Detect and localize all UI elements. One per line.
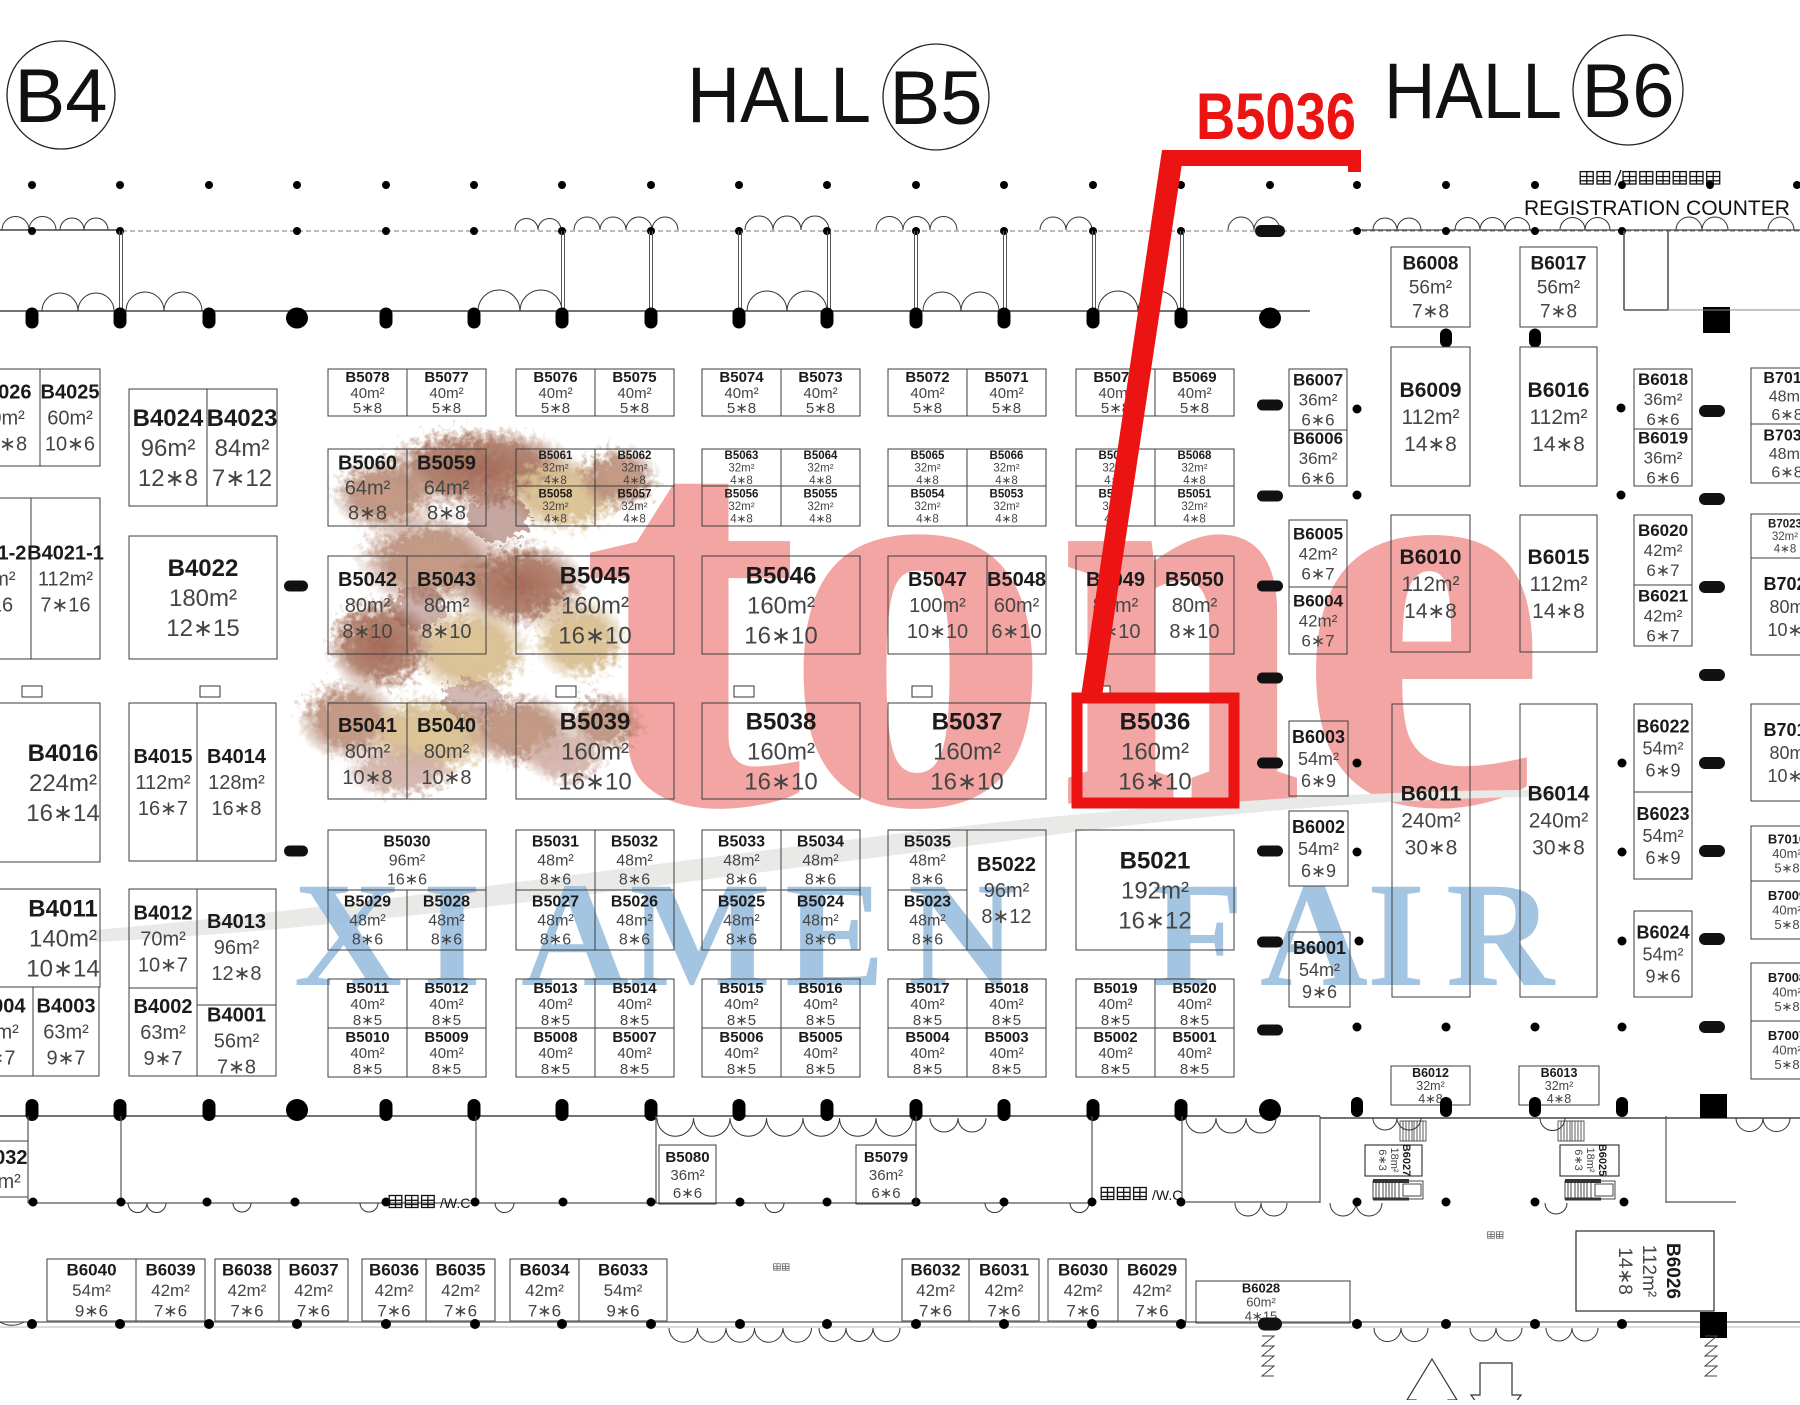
svg-text:B6032: B6032 xyxy=(910,1261,960,1280)
svg-text:6∗9: 6∗9 xyxy=(1301,861,1336,881)
svg-text:6∗6: 6∗6 xyxy=(871,1185,900,1202)
svg-text:112m²: 112m² xyxy=(1402,573,1460,596)
svg-text:80m²: 80m² xyxy=(1769,597,1800,617)
svg-text:192m²: 192m² xyxy=(1121,877,1189,904)
svg-text:32m²: 32m² xyxy=(1545,1079,1573,1093)
svg-text:B6034: B6034 xyxy=(519,1261,570,1280)
svg-text:B5009: B5009 xyxy=(424,1029,468,1046)
svg-text:42m²: 42m² xyxy=(1133,1281,1172,1300)
svg-text:B7019: B7019 xyxy=(1763,720,1800,740)
svg-text:54m²: 54m² xyxy=(1299,960,1340,980)
svg-text:64m²: 64m² xyxy=(424,478,470,500)
svg-text:42m²: 42m² xyxy=(1064,1281,1103,1300)
svg-text:B6: B6 xyxy=(1582,49,1675,134)
svg-text:B6035: B6035 xyxy=(435,1261,485,1280)
svg-text:B5035: B5035 xyxy=(904,834,951,851)
svg-text:40m²: 40m² xyxy=(350,1045,384,1062)
svg-text:B4015: B4015 xyxy=(134,746,193,768)
svg-text:10∗8: 10∗8 xyxy=(342,767,392,789)
svg-text:7∗6: 7∗6 xyxy=(1135,1302,1168,1321)
svg-text:40m²: 40m² xyxy=(724,996,758,1013)
svg-text:32m²: 32m² xyxy=(542,501,568,513)
svg-text:7∗8: 7∗8 xyxy=(1412,302,1449,323)
svg-text:B5036: B5036 xyxy=(1120,708,1191,735)
svg-text:B5041: B5041 xyxy=(338,715,397,737)
svg-text:B6037: B6037 xyxy=(288,1261,338,1280)
svg-text:40m²: 40m² xyxy=(1772,903,1800,918)
svg-text:16∗12: 16∗12 xyxy=(1118,907,1192,934)
svg-text:6∗7: 6∗7 xyxy=(1301,632,1334,651)
svg-text:16∗14: 16∗14 xyxy=(26,800,100,827)
svg-text:B5031: B5031 xyxy=(532,834,579,851)
svg-text:B5023: B5023 xyxy=(904,894,951,911)
svg-text:B7010: B7010 xyxy=(1768,832,1800,847)
svg-text:B6026: B6026 xyxy=(1662,1243,1683,1299)
svg-text:B4002: B4002 xyxy=(134,996,193,1018)
svg-text:70m²: 70m² xyxy=(140,929,186,951)
svg-text:54m²: 54m² xyxy=(72,1281,111,1300)
svg-text:6∗6: 6∗6 xyxy=(673,1185,702,1202)
svg-text:40m²: 40m² xyxy=(910,1045,944,1062)
svg-text:B4014: B4014 xyxy=(207,746,267,768)
svg-text:112m²: 112m² xyxy=(1638,1245,1659,1297)
svg-text:8∗5: 8∗5 xyxy=(1101,1012,1130,1029)
svg-text:B5025: B5025 xyxy=(718,894,765,911)
svg-text:B6009: B6009 xyxy=(1400,379,1462,402)
svg-text:B5027: B5027 xyxy=(532,894,579,911)
svg-text:I: I xyxy=(1367,852,1425,1018)
svg-text:140m²: 140m² xyxy=(29,925,97,952)
svg-text:B5014: B5014 xyxy=(612,980,657,997)
svg-text:8∗6: 8∗6 xyxy=(912,932,943,949)
svg-text:5∗8: 5∗8 xyxy=(1774,1057,1799,1072)
svg-text:5∗8: 5∗8 xyxy=(992,400,1021,417)
svg-text:B5072: B5072 xyxy=(905,369,949,386)
svg-text:4∗8: 4∗8 xyxy=(544,475,566,487)
svg-text:8∗8: 8∗8 xyxy=(348,503,387,525)
svg-text:B6022: B6022 xyxy=(1636,716,1689,736)
svg-text:48m²: 48m² xyxy=(616,853,653,870)
svg-text:16∗6: 16∗6 xyxy=(387,872,427,889)
svg-text:B5040: B5040 xyxy=(417,715,476,737)
svg-text:8∗5: 8∗5 xyxy=(541,1061,570,1078)
svg-text:40m²: 40m² xyxy=(429,996,463,1013)
svg-text:8∗6: 8∗6 xyxy=(805,932,836,949)
svg-text:B5055: B5055 xyxy=(804,488,838,500)
svg-text:4∗8: 4∗8 xyxy=(1183,514,1205,526)
svg-text:112m²: 112m² xyxy=(0,569,16,591)
svg-text:B5011: B5011 xyxy=(346,980,389,997)
svg-text:B5065: B5065 xyxy=(911,450,945,462)
svg-text:B5017: B5017 xyxy=(905,980,949,997)
svg-text:32m²: 32m² xyxy=(807,463,833,475)
svg-text:B5068: B5068 xyxy=(1178,450,1212,462)
svg-text:180m²: 180m² xyxy=(169,585,237,612)
svg-text:36m²: 36m² xyxy=(1299,449,1338,468)
svg-text:4∗8: 4∗8 xyxy=(809,475,831,487)
svg-text:32m²: 32m² xyxy=(1181,463,1207,475)
svg-text:40m²: 40m² xyxy=(429,1045,463,1062)
svg-text:4∗8: 4∗8 xyxy=(544,514,566,526)
svg-text:7∗8: 7∗8 xyxy=(1540,302,1577,323)
svg-text:84m²: 84m² xyxy=(215,435,270,462)
svg-text:6∗8: 6∗8 xyxy=(1771,407,1800,424)
svg-text:48m²: 48m² xyxy=(802,853,839,870)
svg-text:8∗10: 8∗10 xyxy=(342,621,392,643)
svg-text:4∗8: 4∗8 xyxy=(809,514,831,526)
svg-text:8∗5: 8∗5 xyxy=(353,1061,382,1078)
svg-text:B6030: B6030 xyxy=(1058,1261,1108,1280)
svg-text:7∗6: 7∗6 xyxy=(297,1302,330,1321)
svg-text:7∗16: 7∗16 xyxy=(0,595,13,617)
svg-text:8∗10: 8∗10 xyxy=(421,621,471,643)
svg-text:8∗5: 8∗5 xyxy=(432,1061,461,1078)
svg-text:16∗10: 16∗10 xyxy=(930,768,1004,795)
svg-text:100m²: 100m² xyxy=(909,595,966,617)
svg-text:80m²: 80m² xyxy=(1172,595,1218,617)
svg-text:6∗9: 6∗9 xyxy=(1645,760,1680,780)
svg-text:63m²: 63m² xyxy=(43,1022,89,1044)
svg-text:B5003: B5003 xyxy=(984,1029,1028,1046)
svg-text:B6033: B6033 xyxy=(598,1261,648,1280)
svg-text:18m²: 18m² xyxy=(1388,1147,1400,1172)
svg-text:B6016: B6016 xyxy=(1528,379,1590,402)
svg-text:B5018: B5018 xyxy=(984,980,1028,997)
svg-text:B6011: B6011 xyxy=(1401,782,1462,805)
svg-text:16∗7: 16∗7 xyxy=(138,798,188,820)
svg-text:40m²: 40m² xyxy=(724,1045,758,1062)
svg-text:B6018: B6018 xyxy=(1638,370,1688,389)
svg-text:B6029: B6029 xyxy=(1127,1261,1177,1280)
svg-text:4∗8: 4∗8 xyxy=(730,475,752,487)
svg-text:B4024: B4024 xyxy=(133,405,204,432)
svg-text:B6021: B6021 xyxy=(1638,587,1688,606)
svg-text:42m²: 42m² xyxy=(916,1281,955,1300)
svg-text:30∗8: 30∗8 xyxy=(1532,836,1585,859)
svg-text:B5030: B5030 xyxy=(383,834,430,851)
svg-text:8∗12: 8∗12 xyxy=(981,906,1031,928)
svg-text:9∗6: 9∗6 xyxy=(606,1302,639,1321)
svg-text:7∗6: 7∗6 xyxy=(987,1302,1020,1321)
svg-text:B5061: B5061 xyxy=(539,450,573,462)
svg-text:8∗10: 8∗10 xyxy=(1169,621,1219,643)
svg-text:B5002: B5002 xyxy=(1093,1029,1137,1046)
svg-text:10∗8: 10∗8 xyxy=(0,434,27,456)
svg-text:B5048: B5048 xyxy=(987,569,1046,591)
svg-text:80m²: 80m² xyxy=(345,741,391,763)
svg-text:14∗8: 14∗8 xyxy=(1614,1247,1635,1295)
svg-text:6∗6: 6∗6 xyxy=(1301,469,1334,488)
svg-text:7∗6: 7∗6 xyxy=(444,1302,477,1321)
svg-text:32m²: 32m² xyxy=(621,463,647,475)
svg-text:8∗6: 8∗6 xyxy=(352,932,383,949)
svg-text:B5054: B5054 xyxy=(911,488,945,500)
svg-text:56m²: 56m² xyxy=(1409,278,1452,299)
svg-text:B6040: B6040 xyxy=(66,1261,116,1280)
svg-text:B6001: B6001 xyxy=(1293,938,1346,958)
svg-text:8∗5: 8∗5 xyxy=(432,1012,461,1029)
svg-text:8∗6: 8∗6 xyxy=(540,872,571,889)
svg-text:B5066: B5066 xyxy=(990,450,1024,462)
svg-text:40m²: 40m² xyxy=(1772,1043,1800,1058)
svg-text:160m²: 160m² xyxy=(561,592,629,619)
svg-text:B7033: B7033 xyxy=(1763,428,1800,445)
svg-text:40m²: 40m² xyxy=(350,996,384,1013)
svg-text:16∗8: 16∗8 xyxy=(211,798,261,820)
svg-text:48m²: 48m² xyxy=(349,913,386,930)
svg-text:240m²: 240m² xyxy=(1401,809,1461,832)
svg-text:B5079: B5079 xyxy=(864,1149,908,1166)
svg-text:B4013: B4013 xyxy=(207,911,266,933)
svg-text:9∗7: 9∗7 xyxy=(143,1048,182,1070)
svg-text:B5036: B5036 xyxy=(1196,79,1356,153)
svg-text:B5060: B5060 xyxy=(338,453,397,475)
svg-text:8∗5: 8∗5 xyxy=(992,1061,1021,1078)
svg-text:HALL: HALL xyxy=(1384,46,1562,135)
svg-text:7∗12: 7∗12 xyxy=(212,465,272,492)
svg-text:4∗8: 4∗8 xyxy=(1547,1092,1571,1106)
svg-text:112m²: 112m² xyxy=(1530,406,1588,429)
svg-text:8∗8: 8∗8 xyxy=(427,503,466,525)
svg-text:B4026: B4026 xyxy=(0,382,31,404)
svg-text:B6002: B6002 xyxy=(1292,817,1345,837)
svg-text:B4004: B4004 xyxy=(0,996,26,1018)
svg-text:8∗6: 8∗6 xyxy=(540,932,571,949)
svg-text:32m²: 32m² xyxy=(621,501,647,513)
svg-text:8∗5: 8∗5 xyxy=(1180,1061,1209,1078)
svg-text:9∗7: 9∗7 xyxy=(0,1048,16,1070)
svg-text:112m²: 112m² xyxy=(135,772,191,794)
svg-text:6∗6: 6∗6 xyxy=(1301,410,1334,429)
svg-text:40m²: 40m² xyxy=(1098,996,1132,1013)
svg-text:32m²: 32m² xyxy=(542,463,568,475)
svg-text:8∗5: 8∗5 xyxy=(806,1061,835,1078)
svg-text:B4: B4 xyxy=(15,54,108,139)
svg-text:8∗5: 8∗5 xyxy=(620,1061,649,1078)
svg-text:B7008: B7008 xyxy=(1768,970,1800,985)
svg-text:6∗6: 6∗6 xyxy=(1646,468,1679,487)
svg-text:B7009: B7009 xyxy=(1768,888,1800,903)
svg-text:B6024: B6024 xyxy=(1636,922,1689,942)
svg-text:B5047: B5047 xyxy=(908,569,967,591)
svg-text:56m²: 56m² xyxy=(214,1031,260,1053)
svg-text:48m²: 48m² xyxy=(616,913,653,930)
svg-text:32m²: 32m² xyxy=(914,501,940,513)
svg-text:B7007: B7007 xyxy=(1768,1028,1800,1043)
svg-text:48m²: 48m² xyxy=(723,853,760,870)
svg-text:4∗8: 4∗8 xyxy=(916,514,938,526)
svg-text:10∗8: 10∗8 xyxy=(1767,620,1800,640)
svg-text:14∗8: 14∗8 xyxy=(1404,600,1457,623)
svg-text:10∗8: 10∗8 xyxy=(1767,766,1800,786)
svg-text:14∗8: 14∗8 xyxy=(1532,433,1585,456)
svg-text:54m²: 54m² xyxy=(0,1171,21,1193)
svg-text:B7024: B7024 xyxy=(1763,574,1800,594)
svg-text:240m²: 240m² xyxy=(1529,809,1589,832)
svg-text:B5012: B5012 xyxy=(424,980,468,997)
svg-text:B5078: B5078 xyxy=(345,369,389,386)
svg-text:B5037: B5037 xyxy=(932,708,1003,735)
svg-text:7∗16: 7∗16 xyxy=(40,595,90,617)
svg-text:B5: B5 xyxy=(890,56,983,141)
svg-text:16∗10: 16∗10 xyxy=(744,622,818,649)
svg-text:6∗7: 6∗7 xyxy=(1301,565,1334,584)
svg-text:48m²: 48m² xyxy=(428,913,465,930)
svg-text:B6006: B6006 xyxy=(1293,429,1343,448)
svg-text:B5038: B5038 xyxy=(746,708,817,735)
svg-text:6∗7: 6∗7 xyxy=(1646,561,1679,580)
svg-text:B5077: B5077 xyxy=(424,369,468,386)
svg-text:5∗8: 5∗8 xyxy=(1774,861,1799,876)
svg-text:B6027: B6027 xyxy=(1400,1144,1412,1176)
svg-text:B6020: B6020 xyxy=(1638,521,1688,540)
svg-text:B5080: B5080 xyxy=(665,1149,709,1166)
svg-text:B5073: B5073 xyxy=(798,369,842,386)
svg-text:32m²: 32m² xyxy=(1181,501,1207,513)
svg-text:160m²: 160m² xyxy=(1121,738,1189,765)
svg-text:32m²: 32m² xyxy=(914,463,940,475)
svg-text:7∗6: 7∗6 xyxy=(1066,1302,1099,1321)
svg-text:6∗7: 6∗7 xyxy=(1646,627,1679,646)
svg-text:B5022: B5022 xyxy=(977,854,1036,876)
svg-text:B4021-1: B4021-1 xyxy=(27,543,104,565)
svg-text:36m²: 36m² xyxy=(1644,448,1683,467)
svg-text:40m²: 40m² xyxy=(617,1045,651,1062)
svg-text:5∗8: 5∗8 xyxy=(727,400,756,417)
svg-text:8∗6: 8∗6 xyxy=(619,932,650,949)
svg-text:B5056: B5056 xyxy=(725,488,759,500)
svg-text:40m²: 40m² xyxy=(617,996,651,1013)
svg-text:B5008: B5008 xyxy=(533,1029,577,1046)
svg-text:60m²: 60m² xyxy=(0,408,25,430)
svg-text:B4003: B4003 xyxy=(37,996,96,1018)
svg-text:B4023: B4023 xyxy=(207,405,278,432)
svg-text:B4032: B4032 xyxy=(0,1147,27,1169)
svg-text:48m²: 48m² xyxy=(802,913,839,930)
svg-text:56m²: 56m² xyxy=(1537,278,1580,299)
svg-text:8∗5: 8∗5 xyxy=(620,1012,649,1029)
svg-text:B6015: B6015 xyxy=(1528,546,1590,569)
svg-text:64m²: 64m² xyxy=(345,478,391,500)
svg-text:12∗8: 12∗8 xyxy=(138,465,198,492)
svg-text:5∗8: 5∗8 xyxy=(541,400,570,417)
svg-text:12∗15: 12∗15 xyxy=(166,615,240,642)
svg-text:48m²: 48m² xyxy=(537,853,574,870)
svg-text:54m²: 54m² xyxy=(1642,826,1683,846)
svg-text:32m²: 32m² xyxy=(728,501,754,513)
svg-text:B5013: B5013 xyxy=(533,980,577,997)
svg-text:8∗5: 8∗5 xyxy=(913,1061,942,1078)
svg-text:160m²: 160m² xyxy=(747,592,815,619)
svg-text:48m²: 48m² xyxy=(537,913,574,930)
svg-text:B5020: B5020 xyxy=(1172,980,1216,997)
svg-text:R: R xyxy=(1446,852,1556,1018)
svg-text:63m²: 63m² xyxy=(0,1022,19,1044)
svg-text:8∗6: 8∗6 xyxy=(912,872,943,889)
svg-text:160m²: 160m² xyxy=(747,738,815,765)
svg-text:8∗5: 8∗5 xyxy=(1180,1012,1209,1029)
svg-text:60m²: 60m² xyxy=(994,595,1040,617)
svg-text:B5050: B5050 xyxy=(1165,569,1224,591)
svg-text:B4001: B4001 xyxy=(207,1005,266,1027)
svg-text:B5074: B5074 xyxy=(719,369,764,386)
svg-text:40m²: 40m² xyxy=(910,996,944,1013)
svg-text:B4025: B4025 xyxy=(41,382,100,404)
svg-text:80m²: 80m² xyxy=(424,595,470,617)
svg-text:10∗7: 10∗7 xyxy=(138,955,188,977)
svg-text:8∗5: 8∗5 xyxy=(541,1012,570,1029)
svg-text:40m²: 40m² xyxy=(803,1045,837,1062)
svg-text:4∗8: 4∗8 xyxy=(623,475,645,487)
svg-text:48m²: 48m² xyxy=(909,853,946,870)
svg-text:B5033: B5033 xyxy=(718,834,765,851)
svg-text:B6013: B6013 xyxy=(1541,1066,1578,1080)
svg-text:6∗10: 6∗10 xyxy=(991,621,1041,643)
svg-text:96m²: 96m² xyxy=(389,853,426,870)
svg-text:80m²: 80m² xyxy=(424,741,470,763)
svg-text:96m²: 96m² xyxy=(984,880,1030,902)
svg-text:8∗5: 8∗5 xyxy=(1101,1061,1130,1078)
svg-text:40m²: 40m² xyxy=(538,1045,572,1062)
svg-text:B5063: B5063 xyxy=(725,450,759,462)
svg-text:B6017: B6017 xyxy=(1531,254,1587,275)
svg-text:8∗5: 8∗5 xyxy=(806,1012,835,1029)
svg-text:16∗10: 16∗10 xyxy=(558,622,632,649)
svg-text:B5045: B5045 xyxy=(560,562,631,589)
svg-text:16∗10: 16∗10 xyxy=(744,768,818,795)
svg-text:B6010: B6010 xyxy=(1400,546,1462,569)
svg-text:B6031: B6031 xyxy=(979,1261,1029,1280)
svg-text:8∗5: 8∗5 xyxy=(353,1012,382,1029)
svg-text:42m²: 42m² xyxy=(441,1281,480,1300)
svg-text:54m²: 54m² xyxy=(1298,749,1339,769)
svg-text:7∗6: 7∗6 xyxy=(230,1302,263,1321)
svg-text:B4021-2: B4021-2 xyxy=(0,543,26,565)
svg-text:12∗8: 12∗8 xyxy=(211,963,261,985)
svg-text:B4016: B4016 xyxy=(28,740,99,767)
svg-text:8∗5: 8∗5 xyxy=(913,1012,942,1029)
svg-text:5∗8: 5∗8 xyxy=(620,400,649,417)
svg-text:36m²: 36m² xyxy=(869,1167,903,1184)
svg-text:54m²: 54m² xyxy=(1298,839,1339,859)
svg-text:42m²: 42m² xyxy=(1644,607,1683,626)
svg-text:6∗6: 6∗6 xyxy=(1646,410,1679,429)
svg-text:7∗6: 7∗6 xyxy=(154,1302,187,1321)
svg-text:B7018: B7018 xyxy=(1763,370,1800,387)
svg-text:B6036: B6036 xyxy=(369,1261,419,1280)
svg-text:10∗8: 10∗8 xyxy=(421,767,471,789)
svg-text:6∗8: 6∗8 xyxy=(1771,465,1800,482)
svg-text:112m²: 112m² xyxy=(38,569,94,591)
svg-text:B6038: B6038 xyxy=(222,1261,272,1280)
svg-text:B6025: B6025 xyxy=(1596,1144,1608,1176)
svg-text:B6008: B6008 xyxy=(1403,254,1459,275)
svg-text:42m²: 42m² xyxy=(1299,545,1338,564)
svg-text:B5029: B5029 xyxy=(344,894,391,911)
svg-text:96m²: 96m² xyxy=(214,937,260,959)
svg-text:4∗8: 4∗8 xyxy=(1774,544,1796,556)
svg-text:48m²: 48m² xyxy=(1769,389,1800,406)
svg-text:B5032: B5032 xyxy=(611,834,658,851)
svg-text:16∗10: 16∗10 xyxy=(558,768,632,795)
svg-text:14∗8: 14∗8 xyxy=(1532,600,1585,623)
svg-text:B4011: B4011 xyxy=(28,895,97,922)
svg-text:63m²: 63m² xyxy=(140,1022,186,1044)
svg-text:18m²: 18m² xyxy=(1584,1147,1596,1172)
svg-text:30∗8: 30∗8 xyxy=(1405,836,1458,859)
svg-text:8∗6: 8∗6 xyxy=(431,932,462,949)
svg-text:5∗8: 5∗8 xyxy=(432,400,461,417)
